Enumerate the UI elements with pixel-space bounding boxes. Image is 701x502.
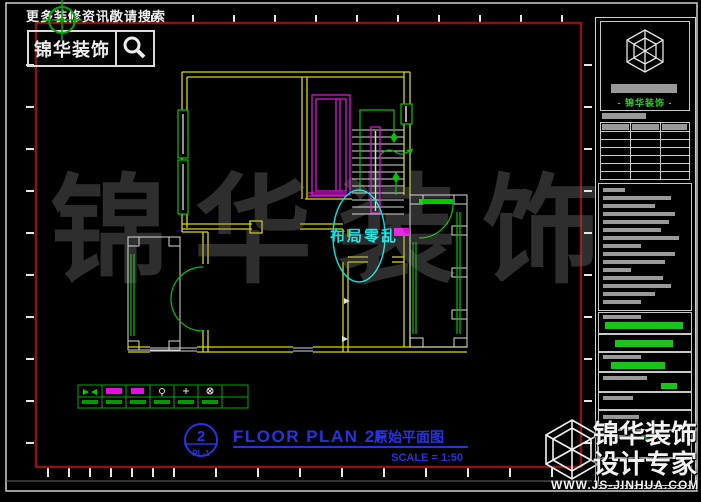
legend-symbol-lamps [160, 388, 214, 396]
divider [115, 32, 117, 65]
legend-table [78, 385, 248, 408]
badge-tagline-text: 设计专家 [593, 444, 697, 481]
notes-box [598, 183, 692, 311]
annotation-text: 布局零乱 [330, 227, 398, 245]
annotation-bubble: 布局零乱 [330, 190, 398, 282]
title-en: FLOOR PLAN 2F [233, 427, 388, 446]
title-scale: SCALE = 1:50 [391, 452, 463, 464]
project-name-box [598, 334, 692, 352]
title-sheet-no: PL-1 [192, 449, 210, 458]
badge-website-text: WWW.JS-JINHUA.COM [551, 478, 699, 492]
panel-brand-text: - 锦华装饰 - [601, 96, 689, 109]
company-cube-logo-icon [601, 22, 689, 80]
drawing-name-box [598, 352, 692, 372]
title-cn: 原始平面图 [374, 429, 444, 445]
drawing-title: 2 PL-1 FLOOR PLAN 2F 原始平面图 SCALE = 1:50 [184, 424, 468, 464]
section-label [602, 113, 646, 119]
scale-box [598, 372, 692, 392]
project-box [598, 312, 692, 334]
promo-search-block: 更多装修资讯敬请搜索 锦华装饰 [26, 6, 166, 25]
brand-badge: 锦华装饰 设计专家 WWW.JS-JINHUA.COM [535, 408, 701, 502]
cad-sheet: 锦华装饰 [0, 0, 701, 502]
revision-table [600, 122, 690, 180]
brand-name: 锦华装饰 [29, 36, 110, 62]
legend-symbol-icons [83, 388, 144, 395]
brand-search-box[interactable]: 锦华装饰 [27, 30, 155, 67]
search-icon[interactable] [119, 34, 149, 62]
title-number: 2 [197, 428, 205, 445]
company-name-bar [611, 84, 677, 93]
panel-logo-box: - 锦华装饰 - [600, 21, 690, 111]
